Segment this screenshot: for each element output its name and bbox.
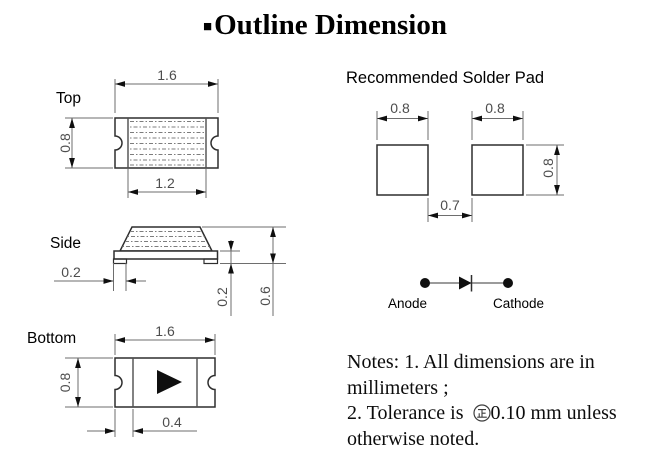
dim-bottom-height-value: 0.8 [57,373,73,393]
note-line-2: millimeters ; [347,376,647,402]
arrowhead [472,116,482,122]
arrowhead [128,189,138,195]
note-line-3: 2. Tolerance is0.10 mm unless [347,401,647,427]
dim-top-width-value: 1.6 [157,67,177,83]
arrowhead [270,227,276,237]
dim-side-total-height-value: 0.6 [257,286,273,306]
solder-pad-right [472,145,523,195]
dim-top-inner-value: 1.2 [155,175,175,191]
dim-bottom-height: 0.8 [57,358,113,407]
dim-pad-width-left-value: 0.8 [390,100,410,116]
solder-pad-left [377,145,428,195]
dim-pad-width-right-value: 0.8 [485,100,505,116]
arrowhead [196,189,206,195]
notes-block: Notes: 1. All dimensions are in millimet… [347,350,647,452]
arrowhead [126,278,136,284]
note-tolerance-prefix: 2. Tolerance is [347,402,464,424]
note-tolerance-suffix: 0.10 mm unless [491,402,617,424]
dim-pad-gap-value: 0.7 [440,197,460,213]
arrowhead [554,145,560,155]
anode-terminal-dot [420,278,430,288]
dim-top-height: 0.8 [57,118,113,168]
arrowhead [554,185,560,195]
dim-side-heights: 0.2 0.6 [202,227,286,316]
dim-top-width: 1.6 [115,67,218,113]
arrowhead [418,116,428,122]
solder-pad-title: Recommended Solder Pad [346,69,544,87]
arrowhead [228,241,234,251]
dim-bottom-terminal-value: 0.4 [162,414,182,430]
arrowhead [75,397,81,407]
arrowhead [205,337,215,343]
dim-bottom-terminal: 0.4 [87,409,197,437]
dim-pad-gap: 0.7 [428,197,472,222]
arrowhead [377,116,387,122]
solder-pad-diagram: Recommended Solder Pad 0.8 0.8 0.8 [346,69,564,222]
arrowhead [270,254,276,264]
dim-side-terminal: 0.2 [54,263,146,291]
note-line-4: otherwise noted. [347,427,647,453]
arrowhead [105,428,115,434]
bottom-view: Bottom 1.6 0.8 0.4 [27,323,215,437]
anode-label: Anode [388,296,427,311]
cathode-label: Cathode [493,296,544,311]
arrowhead [75,358,81,368]
arrowhead [115,81,125,87]
arrowhead [104,278,114,284]
dim-pad-width-right: 0.8 [472,100,523,140]
dim-pad-height: 0.8 [526,145,564,195]
cathode-terminal-dot [503,278,513,288]
top-view-label: Top [56,90,81,107]
side-view-base [114,251,218,259]
side-view-label: Side [50,235,81,252]
dim-side-terminal-value: 0.2 [61,264,81,280]
arrowhead [115,337,125,343]
circled-plus-minus-icon [473,404,491,422]
arrowhead [228,264,234,274]
arrowhead [462,213,472,219]
arrowhead [69,158,75,168]
side-view: Side 0.2 0.2 [50,227,286,316]
dim-top-inner-width: 1.2 [128,169,206,198]
top-view: Top 1.6 0.8 [56,67,218,198]
arrowhead [428,213,438,219]
arrowhead [133,428,143,434]
dim-bottom-width: 1.6 [115,323,215,355]
arrowhead [69,118,75,128]
bottom-view-label: Bottom [27,330,76,347]
dim-pad-height-value: 0.8 [540,158,556,178]
diode-symbol: Anode Cathode [388,275,544,311]
dim-pad-width-left: 0.8 [377,100,428,140]
arrowhead [513,116,523,122]
side-view-body [120,227,212,251]
arrowhead [208,81,218,87]
dim-top-height-value: 0.8 [57,133,73,153]
dim-side-base-height-value: 0.2 [214,287,230,307]
dim-bottom-width-value: 1.6 [155,323,175,339]
diode-triangle-icon [459,277,472,290]
note-line-1: Notes: 1. All dimensions are in [347,350,647,376]
